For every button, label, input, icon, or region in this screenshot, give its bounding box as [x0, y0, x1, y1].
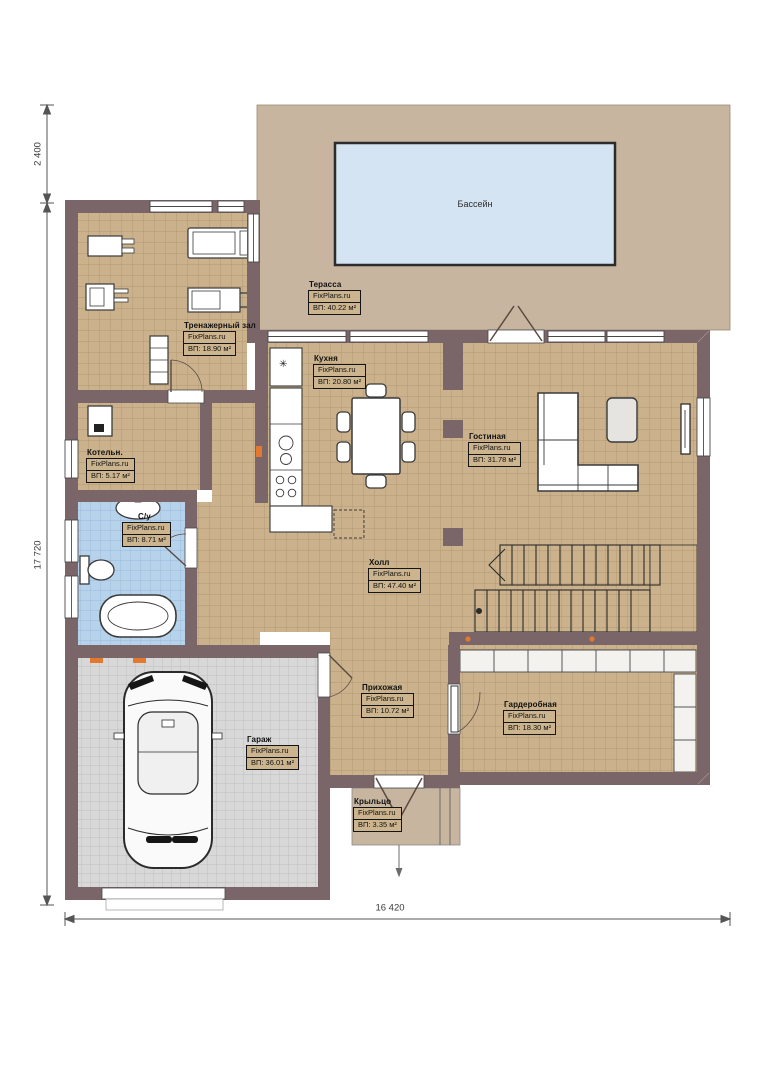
tv	[681, 404, 690, 454]
bathtub	[100, 595, 176, 637]
room-label-kitchen: Кухня FixPlans.ruВП: 20.80 м²	[313, 354, 366, 390]
dimension-left: 17 720	[33, 540, 44, 569]
room-label-hall: Холл FixPlans.ruВП: 47.40 м²	[368, 558, 421, 594]
room-label-gym: Тренажерный зал FixPlans.ruВП: 18.90 м²	[183, 321, 256, 357]
room-label-porch: Крыльцо FixPlans.ruВП: 3.35 м²	[353, 797, 402, 833]
room-label-entry: Прихожая FixPlans.ruВП: 10.72 м²	[361, 683, 414, 719]
pool-label: Бассейн	[335, 143, 615, 265]
room-label-boiler: Котельн. FixPlans.ruВП: 5.17 м²	[86, 448, 135, 484]
room-label-living: Гостиная FixPlans.ruВП: 31.78 м²	[468, 432, 521, 468]
car	[114, 672, 222, 868]
room-label-bathroom: С/у FixPlans.ruВП: 8.71 м²	[122, 512, 171, 548]
fridge-snowflake-icon: ✳	[279, 359, 287, 370]
coffee-table	[607, 398, 637, 442]
room-label-terrace: Терасса FixPlans.ruВП: 40.22 м²	[308, 280, 361, 316]
toilet-bowl	[88, 560, 114, 580]
dimension-top-left: 2 400	[33, 142, 44, 166]
room-label-garage: Гараж FixPlans.ruВП: 36.01 м²	[246, 735, 299, 771]
room-label-wardrobe: Гардеробная FixPlans.ruВП: 18.30 м²	[503, 700, 557, 736]
floor-plan: Бассейн Терасса FixPlans.ruВП: 40.22 м² …	[0, 0, 763, 1080]
dimension-bottom: 16 420	[375, 903, 404, 914]
